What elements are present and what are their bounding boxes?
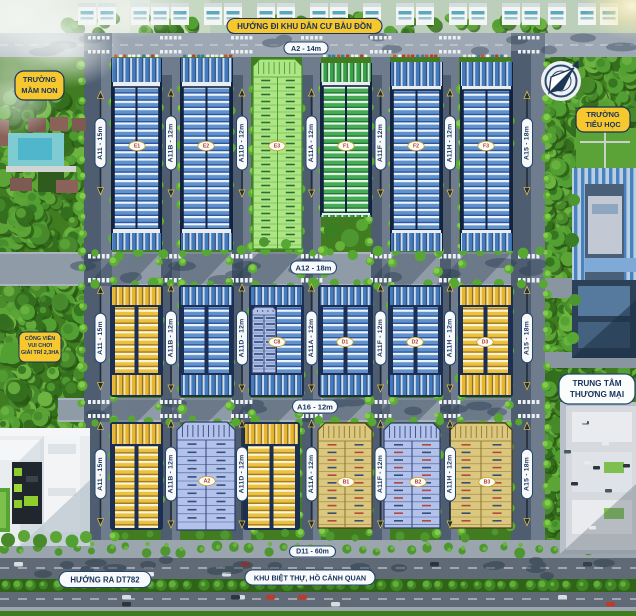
- svg-text:E2: E2: [203, 143, 209, 149]
- svg-text:THƯƠNG MẠI: THƯƠNG MẠI: [570, 390, 624, 399]
- svg-text:B1: B1: [343, 479, 350, 485]
- svg-text:TIỂU HỌC: TIỂU HỌC: [585, 120, 621, 129]
- svg-text:TRUNG TÂM: TRUNG TÂM: [572, 377, 621, 388]
- svg-text:E3: E3: [274, 143, 280, 149]
- svg-text:A11F - 12m: A11F - 12m: [377, 124, 384, 162]
- svg-text:A2: A2: [204, 478, 211, 484]
- svg-text:HƯỚNG ĐI KHU DÂN CƯ BÀU ĐỒN: HƯỚNG ĐI KHU DÂN CƯ BÀU ĐỒN: [237, 21, 372, 31]
- svg-text:D2: D2: [412, 339, 419, 345]
- svg-text:A2 - 14m: A2 - 14m: [291, 44, 321, 53]
- svg-text:HƯỚNG RA DT782: HƯỚNG RA DT782: [70, 576, 140, 585]
- svg-text:A11B - 12m: A11B - 12m: [168, 124, 175, 163]
- svg-text:B3: B3: [484, 479, 491, 485]
- svg-text:A15 - 18m: A15 - 18m: [524, 457, 531, 491]
- svg-text:MẦM NON: MẦM NON: [21, 85, 57, 95]
- svg-text:A11F - 12m: A11F - 12m: [377, 455, 384, 493]
- svg-text:A11A - 12m: A11A - 12m: [308, 319, 315, 357]
- svg-text:D1: D1: [342, 339, 349, 345]
- svg-text:A11D - 12m: A11D - 12m: [239, 455, 246, 494]
- svg-text:A11D - 12m: A11D - 12m: [239, 319, 246, 358]
- svg-text:F2: F2: [413, 143, 419, 149]
- svg-text:D11 - 60m: D11 - 60m: [296, 549, 329, 556]
- svg-text:KHU BIỆT THỰ, HỒ CẢNH QUAN: KHU BIỆT THỰ, HỒ CẢNH QUAN: [254, 573, 366, 583]
- svg-text:GIẢI TRÍ 2,3HA: GIẢI TRÍ 2,3HA: [21, 348, 59, 356]
- svg-text:VUI CHƠI: VUI CHƠI: [28, 343, 53, 349]
- svg-text:A11F - 12m: A11F - 12m: [377, 319, 384, 357]
- svg-text:A11 - 15m: A11 - 15m: [97, 457, 104, 491]
- svg-text:A11H - 12m: A11H - 12m: [447, 124, 454, 163]
- svg-text:C8: C8: [274, 339, 281, 345]
- svg-text:D3: D3: [482, 339, 489, 345]
- svg-text:A15 - 18m: A15 - 18m: [524, 321, 531, 355]
- svg-text:B2: B2: [415, 479, 422, 485]
- svg-text:F1: F1: [343, 143, 349, 149]
- svg-text:A15 - 18m: A15 - 18m: [524, 126, 531, 160]
- svg-text:E1: E1: [134, 143, 140, 149]
- svg-text:TRƯỜNG: TRƯỜNG: [23, 75, 57, 84]
- svg-text:A11 - 15m: A11 - 15m: [97, 126, 104, 160]
- svg-text:F3: F3: [483, 143, 489, 149]
- svg-text:A11B - 12m: A11B - 12m: [168, 455, 175, 494]
- svg-text:A11A - 12m: A11A - 12m: [308, 455, 315, 493]
- svg-text:A11A - 12m: A11A - 12m: [308, 124, 315, 162]
- svg-text:A11H - 12m: A11H - 12m: [447, 455, 454, 494]
- svg-text:CÔNG VIÊN: CÔNG VIÊN: [25, 334, 55, 342]
- svg-text:A12 - 18m: A12 - 18m: [296, 264, 332, 273]
- svg-text:A16 - 12m: A16 - 12m: [297, 403, 333, 412]
- svg-text:A11 - 15m: A11 - 15m: [97, 321, 104, 355]
- svg-text:A11D - 12m: A11D - 12m: [239, 124, 246, 163]
- svg-text:A11B - 12m: A11B - 12m: [168, 319, 175, 358]
- svg-text:TRƯỜNG: TRƯỜNG: [586, 110, 620, 119]
- svg-text:A11H - 12m: A11H - 12m: [447, 319, 454, 358]
